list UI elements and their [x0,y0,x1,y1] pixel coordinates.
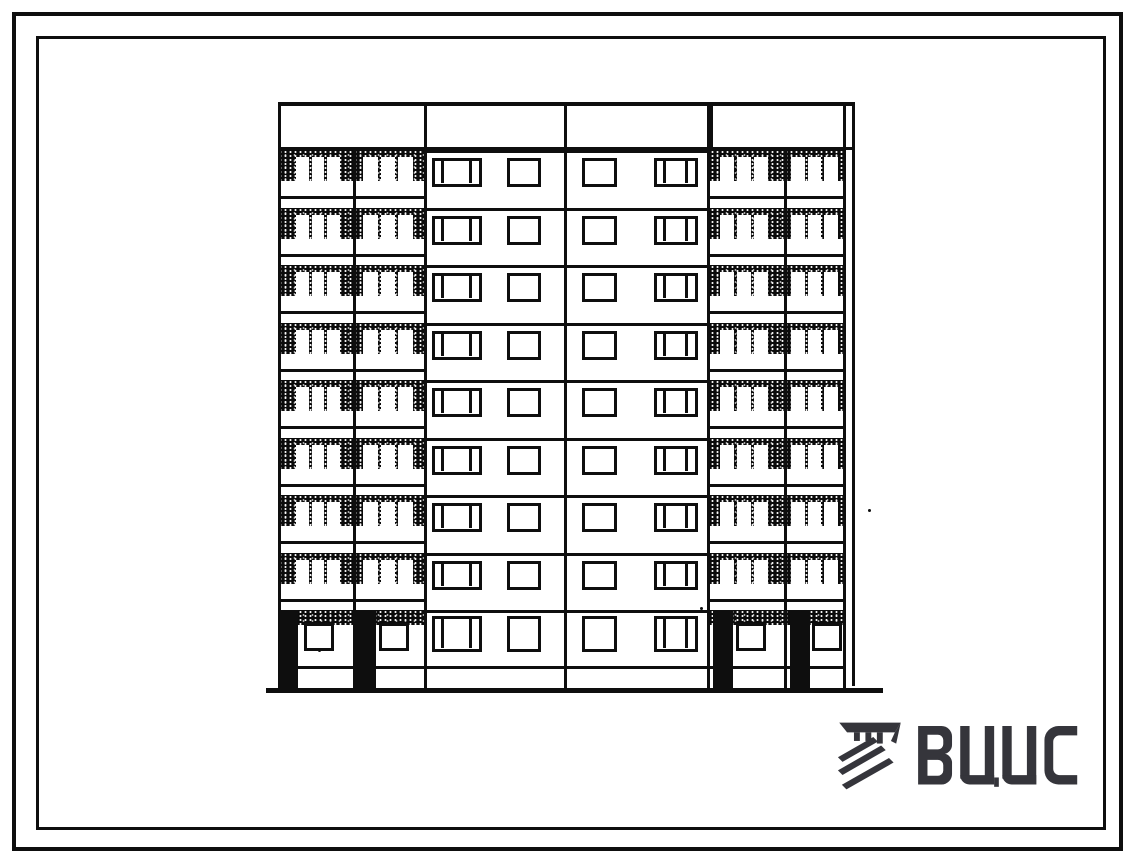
balcony-band [278,208,353,239]
balcony-parapet-slab-line [278,311,353,314]
balcony-window-pane [737,445,751,469]
balcony-window-pane [381,502,396,526]
window-mullion [469,619,472,648]
window-mullion [469,564,472,586]
balcony-window-pane [824,157,838,181]
balcony-window-pane [381,387,396,411]
window-mullion [685,449,688,471]
balcony-window-pane [808,157,822,181]
balcony-band [710,380,784,411]
window-mullion [663,276,666,298]
panel-window-triple [432,331,482,360]
balcony-band [710,553,784,584]
balcony-band [353,495,424,526]
balcony-band [784,265,846,296]
balcony-window-pane [398,157,413,181]
balcony-window-pane [398,215,413,239]
balcony-parapet-slab-line [710,196,784,199]
balcony-band [353,438,424,469]
balcony-band [278,495,353,526]
balcony-window-pane [720,445,734,469]
balcony-window-pane [296,157,309,181]
balcony-band [710,150,784,181]
ground-pier [356,610,376,690]
window-mullion [469,449,472,471]
balcony-window-pane [791,157,805,181]
balcony-window-pane [363,157,378,181]
balcony-window-pane [720,272,734,296]
ground-window [812,623,842,651]
window-mullion [663,219,666,241]
balcony-window-pane [808,560,822,584]
window-mullion [441,334,444,356]
panel-floor-line [424,208,564,211]
balcony-band [784,150,846,181]
window-mullion [441,506,444,528]
balcony-window-pane [791,445,805,469]
panel-window-single [507,331,541,360]
balcony-window-pane [312,387,325,411]
panel-floor-line [424,265,564,268]
balcony-parapet-slab-line [784,599,846,602]
balcony-joint-line [353,150,356,688]
balcony-window-pane [791,330,805,354]
window-mullion [441,219,444,241]
ink-speck [868,509,871,512]
balcony-window-pane [398,272,413,296]
balcony-band [784,380,846,411]
panel-window-triple [654,388,698,417]
ground-window [304,623,334,651]
window-mullion [663,391,666,413]
panel-window-single [507,273,541,302]
window-mullion [441,391,444,413]
balcony-side-rail-line [852,102,855,686]
balcony-window-pane [312,502,325,526]
section-joint-line [843,102,846,688]
panel-floor-line [564,553,710,556]
balcony-window-pane [296,272,309,296]
balcony-band [353,323,424,354]
parapet-divider-line [710,102,713,150]
balcony-parapet-slab-line [278,369,353,372]
balcony-parapet-slab-line [784,196,846,199]
balcony-parapet-slab-line [710,484,784,487]
balcony-band [710,495,784,526]
panel-floor-line [424,438,564,441]
balcony-parapet-slab-line [710,311,784,314]
balcony-window-pane [737,387,751,411]
balcony-window-pane [824,215,838,239]
vcis-logo-wordmark [918,726,1082,788]
panel-window-triple [654,158,698,187]
balcony-window-pane [808,215,822,239]
section-joint-line [707,102,710,688]
balcony-window-pane [754,502,768,526]
panel-window-single [582,388,617,417]
balcony-window-pane [363,387,378,411]
section-joint-line [564,102,567,688]
balcony-band [710,323,784,354]
balcony-parapet-slab-line [710,254,784,257]
balcony-window-pane [398,387,413,411]
panel-floor-line [564,380,710,383]
window-mullion [663,161,666,183]
panel-floor-line [424,380,564,383]
balcony-window-pane [363,272,378,296]
ground-pier [790,610,810,690]
balcony-band [353,150,424,181]
balcony-window-pane [363,560,378,584]
balcony-band [710,265,784,296]
ground-pier [713,610,733,690]
window-mullion [685,161,688,183]
balcony-window-pane [327,560,340,584]
balcony-window-pane [808,445,822,469]
balcony-parapet-slab-line [710,369,784,372]
balcony-band [278,265,353,296]
balcony-window-pane [737,560,751,584]
panel-window-single [507,216,541,245]
balcony-band [278,323,353,354]
balcony-window-pane [398,502,413,526]
balcony-parapet-slab-line [278,196,353,199]
balcony-band [353,265,424,296]
balcony-window-pane [720,215,734,239]
balcony-window-pane [327,445,340,469]
balcony-band [353,553,424,584]
balcony-window-pane [398,330,413,354]
panel-window-single [582,273,617,302]
balcony-parapet-slab-line [710,541,784,544]
balcony-window-pane [737,502,751,526]
balcony-window-pane [363,215,378,239]
panel-window-single [582,216,617,245]
balcony-parapet-slab-line [278,599,353,602]
balcony-band [710,208,784,239]
balcony-band [278,150,353,181]
balcony-window-pane [791,560,805,584]
balcony-band [784,438,846,469]
building-elevation [278,102,846,693]
window-mullion [441,449,444,471]
balcony-window-pane [327,330,340,354]
balcony-window-pane [327,502,340,526]
balcony-window-pane [720,330,734,354]
balcony-window-pane [381,215,396,239]
balcony-window-pane [363,445,378,469]
balcony-window-pane [791,502,805,526]
balcony-window-pane [296,387,309,411]
panel-window-single [507,388,541,417]
balcony-parapet-slab-line [353,311,424,314]
balcony-window-pane [312,560,325,584]
window-mullion [685,334,688,356]
window-mullion [469,276,472,298]
balcony-window-pane [381,157,396,181]
balcony-window-pane [824,560,838,584]
ground-slab-line [278,666,843,669]
window-mullion [685,564,688,586]
panel-floor-line [424,553,564,556]
balcony-parapet-slab-line [278,541,353,544]
ink-speck [700,607,703,610]
balcony-window-pane [720,502,734,526]
ground-window [379,623,409,651]
window-mullion [441,564,444,586]
balcony-window-pane [296,330,309,354]
panel-window-single [582,446,617,475]
ground-window [736,623,766,651]
window-mullion [663,564,666,586]
balcony-window-pane [327,272,340,296]
window-mullion [685,506,688,528]
balcony-window-pane [720,560,734,584]
balcony-window-pane [381,445,396,469]
balcony-band [278,380,353,411]
balcony-parapet-slab-line [710,426,784,429]
balcony-window-pane [808,330,822,354]
balcony-window-pane [312,272,325,296]
panel-window-single [507,158,541,187]
panel-window-single [582,158,617,187]
panel-window-single [582,561,617,590]
section-joint-line [424,102,427,688]
balcony-window-pane [296,502,309,526]
panel-floor-line [424,150,564,153]
panel-window-triple [432,561,482,590]
panel-window-single [507,446,541,475]
balcony-window-pane [824,330,838,354]
balcony-window-pane [381,560,396,584]
balcony-window-pane [296,445,309,469]
balcony-parapet-slab-line [353,426,424,429]
balcony-band [784,553,846,584]
balcony-window-pane [808,387,822,411]
ground-pier [278,610,298,690]
balcony-window-pane [312,215,325,239]
window-mullion [663,506,666,528]
balcony-parapet-slab-line [353,196,424,199]
balcony-window-pane [312,445,325,469]
balcony-window-pane [824,387,838,411]
balcony-window-pane [381,330,396,354]
panel-floor-line [424,495,564,498]
balcony-parapet-slab-line [784,541,846,544]
window-mullion [663,449,666,471]
balcony-window-pane [824,445,838,469]
balcony-window-pane [754,445,768,469]
balcony-window-pane [327,215,340,239]
balcony-window-pane [720,157,734,181]
panel-window-triple [432,216,482,245]
balcony-parapet-slab-line [278,254,353,257]
panel-window-triple [432,273,482,302]
balcony-parapet-slab-line [353,599,424,602]
balcony-window-pane [808,272,822,296]
panel-window-triple [654,273,698,302]
window-mullion [469,391,472,413]
balcony-window-pane [363,502,378,526]
window-mullion [685,219,688,241]
balcony-window-pane [808,502,822,526]
panel-window-triple [654,503,698,532]
panel-window-triple [654,216,698,245]
balcony-parapet-slab-line [710,599,784,602]
panel-window-triple [654,446,698,475]
window-mullion [441,619,444,648]
panel-floor-line [564,265,710,268]
balcony-window-pane [754,272,768,296]
window-mullion [685,619,688,648]
balcony-band [710,438,784,469]
balcony-band [784,208,846,239]
balcony-parapet-slab-line [784,254,846,257]
balcony-parapet-slab-line [784,369,846,372]
balcony-joint-line [784,150,787,688]
balcony-window-pane [791,387,805,411]
balcony-window-pane [791,272,805,296]
balcony-parapet-slab-line [784,484,846,487]
window-mullion [469,506,472,528]
balcony-window-pane [312,330,325,354]
panel-window-triple [432,446,482,475]
window-mullion [469,334,472,356]
balcony-band [278,553,353,584]
ground-panel-window-single [582,616,617,652]
window-mullion [441,161,444,183]
ground-line [266,688,883,693]
panel-window-triple [432,503,482,532]
balcony-window-pane [398,560,413,584]
panel-floor-line [564,438,710,441]
window-mullion [469,219,472,241]
panel-floor-line [564,323,710,326]
balcony-window-pane [327,387,340,411]
balcony-window-pane [737,330,751,354]
balcony-parapet-slab-line [784,311,846,314]
balcony-window-pane [363,330,378,354]
panel-floor-line [424,323,564,326]
balcony-window-pane [754,560,768,584]
window-mullion [469,161,472,183]
balcony-window-pane [737,215,751,239]
balcony-window-pane [398,445,413,469]
panel-window-single [507,503,541,532]
panel-window-triple [432,158,482,187]
balcony-window-pane [381,272,396,296]
balcony-window-pane [296,560,309,584]
ground-panel-window-single [507,616,541,652]
balcony-parapet-slab-line [784,426,846,429]
panel-floor-line [564,495,710,498]
section-joint-line [278,102,281,688]
balcony-parapet-slab-line [353,484,424,487]
balcony-window-pane [720,387,734,411]
balcony-window-pane [327,157,340,181]
balcony-window-pane [754,157,768,181]
balcony-parapet-slab-line [278,484,353,487]
balcony-window-pane [737,272,751,296]
ground-panel-window-triple [432,616,482,652]
window-mullion [663,619,666,648]
panel-window-single [507,561,541,590]
balcony-band [278,438,353,469]
balcony-window-pane [791,215,805,239]
panel-window-triple [654,331,698,360]
panel-floor-line [564,208,710,211]
balcony-parapet-slab-line [353,541,424,544]
balcony-parapet-slab-line [278,426,353,429]
panel-window-triple [432,388,482,417]
window-mullion [663,334,666,356]
balcony-window-pane [824,502,838,526]
panel-window-triple [654,561,698,590]
balcony-band [784,495,846,526]
balcony-parapet-slab-line [353,369,424,372]
balcony-window-pane [824,272,838,296]
balcony-window-pane [754,215,768,239]
balcony-band [353,380,424,411]
panel-window-single [582,503,617,532]
vcis-logo: ВЦИС [837,720,1082,792]
balcony-window-pane [754,387,768,411]
balcony-band [784,323,846,354]
window-mullion [685,391,688,413]
panel-window-single [582,331,617,360]
balcony-window-pane [737,157,751,181]
balcony-window-pane [312,157,325,181]
balcony-band [353,208,424,239]
panel-floor-line [564,150,710,153]
window-mullion [685,276,688,298]
balcony-window-pane [754,330,768,354]
ground-panel-window-triple [654,616,698,652]
ink-speck [318,649,321,652]
drawing-sheet: ВЦИС [0,0,1134,863]
balcony-parapet-slab-line [353,254,424,257]
vcis-emblem-icon [837,720,903,792]
balcony-window-pane [296,215,309,239]
window-mullion [441,276,444,298]
